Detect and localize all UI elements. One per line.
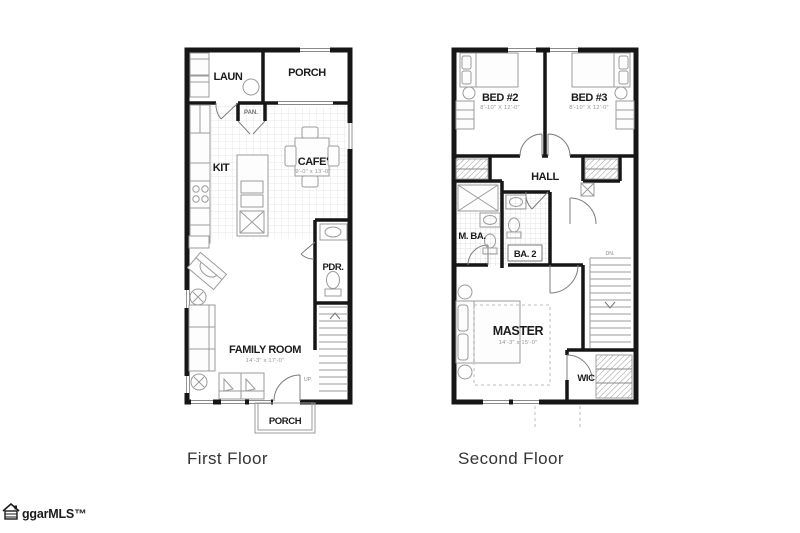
room-dims-master: 14'-3" x 15'-0" xyxy=(499,340,538,346)
roofline-dash xyxy=(535,406,580,428)
bed2-icon xyxy=(456,53,518,129)
logo-text: ggarMLS™ xyxy=(22,507,86,521)
sofa-icon xyxy=(189,305,215,371)
room-label-wic: WIC xyxy=(577,373,595,384)
wic-closet-hatch xyxy=(596,355,632,398)
room-label-cafe: CAFE' xyxy=(298,156,329,168)
room-dims-cafe: 9'-0" x 13'-0" xyxy=(295,169,330,175)
end-table-lamp xyxy=(193,292,203,302)
label-up: UP. xyxy=(304,377,312,383)
kitchen-counter-icon xyxy=(190,105,210,243)
room-label-bed2: BED #2 xyxy=(482,92,518,104)
room-label-laun: LAUN xyxy=(214,71,243,83)
room-label-pdr: PDR. xyxy=(322,262,343,273)
logo: ggarMLS™ xyxy=(1,503,86,521)
room-dims-bed3: 8'-10" X 12'-0" xyxy=(569,105,609,111)
end-table-lamp xyxy=(194,377,204,387)
bed3-icon xyxy=(572,53,634,129)
tv-cabinet-icon xyxy=(188,252,227,289)
stairs-down-icon xyxy=(590,258,631,348)
room-label-bath2: BA. 2 xyxy=(514,249,536,260)
room-label-pan: PAN. xyxy=(244,110,258,116)
linen-box-icon xyxy=(581,183,594,196)
room-label-hall: HALL xyxy=(531,171,559,183)
room-label-porch-top: PORCH xyxy=(288,67,326,79)
floorplan-page: LAUN PORCH PAN. KIT CAFE' 9'-0" x 13'-0"… xyxy=(0,0,800,533)
house-icon xyxy=(1,503,21,521)
room-label-porch-bottom: PORCH xyxy=(269,416,302,427)
room-label-family-room: FAMILY ROOM xyxy=(229,344,301,356)
room-label-master: MASTER xyxy=(493,324,544,338)
first-floor-caption: First Floor xyxy=(187,449,268,469)
room-label-master-bath: M. BA. xyxy=(458,231,485,242)
laundry-tub-icon xyxy=(243,79,259,95)
kitchen-island-icon xyxy=(237,155,268,236)
first-floor-plan: LAUN PORCH PAN. KIT CAFE' 9'-0" x 13'-0"… xyxy=(183,43,361,441)
second-floor-plan: BED #2 8'-10" X 12'-0" BED #3 8'-10" X 1… xyxy=(450,43,642,433)
room-dims-family-room: 14'-3" x 17'-0" xyxy=(246,358,285,364)
washer-dryer-icon xyxy=(190,53,209,97)
stairs-up-icon xyxy=(319,307,348,391)
label-dn: DN. xyxy=(606,251,615,257)
room-label-bed3: BED #3 xyxy=(571,92,607,104)
room-dims-bed2: 8'-10" X 12'-0" xyxy=(480,105,520,111)
side-cabinet-icon xyxy=(189,236,209,248)
room-label-kit: KIT xyxy=(213,162,230,174)
loveseat-icon xyxy=(219,373,264,399)
second-floor-caption: Second Floor xyxy=(458,449,564,469)
